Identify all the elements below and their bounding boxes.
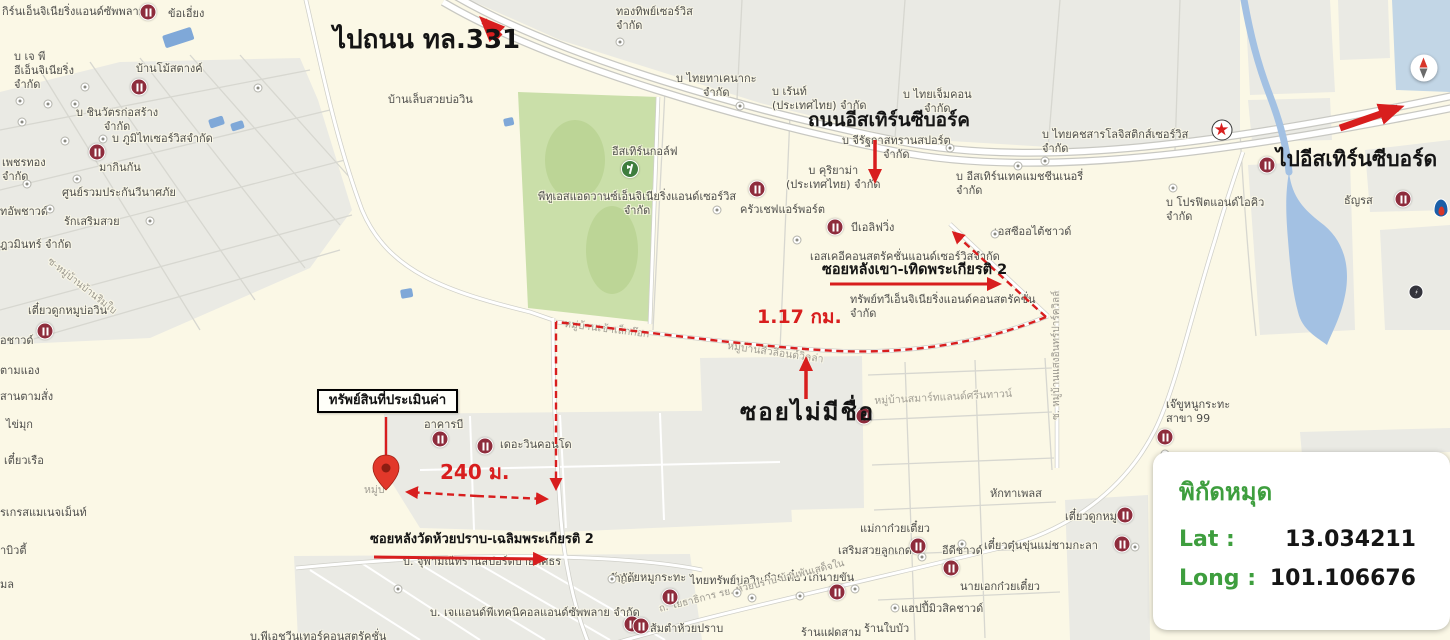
map-canvas[interactable]: กิร์นเอ็นจิเนียริ่งแอนด์ซัพพลายข้อเอี่ยง… [0,0,1450,640]
latitude-value: 13.034211 [1285,527,1416,552]
latitude-row: Lat : 13.034211 [1179,527,1416,552]
coordinates-panel: พิกัดหมุด Lat : 13.034211 Long : 101.106… [1153,452,1450,630]
arrow-soi-wat-huai-prap [374,557,544,559]
arrow-to-eastern-seaboard [1340,108,1398,128]
route-dashed-path [408,233,1046,499]
longitude-label: Long : [1179,566,1256,591]
property-pin-icon [373,455,399,490]
longitude-value: 101.106676 [1270,566,1416,591]
arrow-to-road-331 [484,21,500,37]
latitude-label: Lat : [1179,527,1235,552]
coordinates-title: พิกัดหมุด [1179,472,1416,511]
longitude-row: Long : 101.106676 [1179,566,1416,591]
